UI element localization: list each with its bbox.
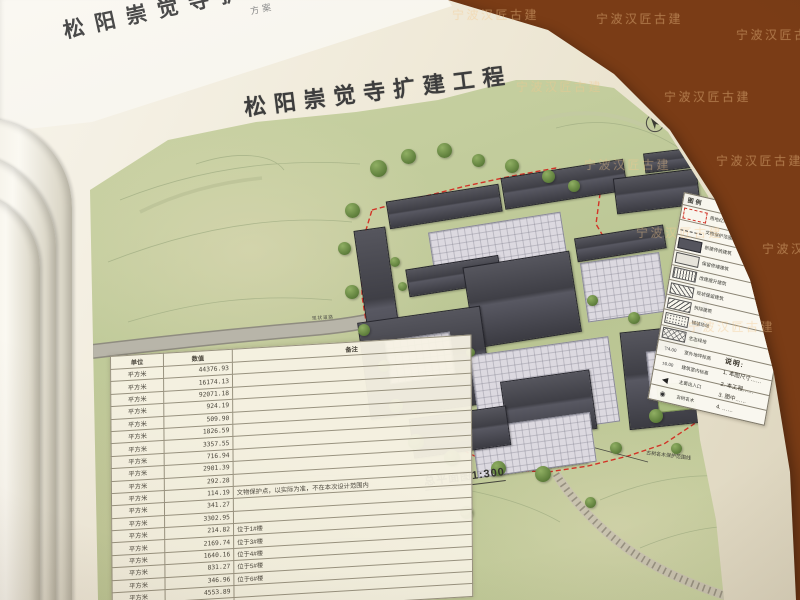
- building-roof: [500, 159, 627, 210]
- tree-icon: [542, 170, 555, 183]
- legend-label: 古树名木: [676, 395, 695, 405]
- tree-icon: [345, 203, 360, 218]
- stone-step-path: [556, 474, 726, 596]
- tree-icon: [568, 180, 580, 192]
- legend-label: 现状保留建筑: [696, 290, 724, 302]
- tree-icon: [338, 242, 351, 255]
- area-statistics-table: 单位 数值 备注 平方米44376.93平方米16174.13平方米92071.…: [110, 335, 473, 600]
- tree-icon: [472, 154, 485, 167]
- tree-icon: [398, 282, 407, 291]
- photo-of-plan-book: 松阳崇觉寺扩建工程 方案: [0, 0, 800, 600]
- tree-icon: [401, 149, 416, 164]
- tree-icon: [649, 409, 663, 423]
- tree-icon: [390, 257, 400, 267]
- tree-icon: [437, 143, 452, 158]
- tree-icon: [345, 285, 359, 299]
- legend-label: 改建提升建筑: [699, 275, 727, 287]
- tree-icon: [610, 442, 622, 454]
- legend-label: 保留修缮建筑: [701, 260, 729, 272]
- legend-label: 主要出入口: [678, 380, 701, 391]
- open-book-page: 松阳崇觉寺扩建工程 方案: [0, 0, 800, 600]
- legend-label: 用地红线: [709, 216, 728, 226]
- elev-marker-icon: ▽4.00: [659, 343, 682, 357]
- previous-page-title: 松阳崇觉寺扩建工程: [60, 0, 348, 45]
- tree-icon: [505, 159, 519, 173]
- legend-label: 拆除建筑: [693, 305, 712, 315]
- tree-icon: [628, 312, 640, 324]
- dash-line-icon: [680, 225, 702, 235]
- tree-icon: [585, 497, 596, 508]
- tree-mark-icon: ◉: [651, 388, 674, 402]
- elev2-marker-icon: ±0.00: [656, 358, 679, 372]
- page-edge-curl: [0, 192, 40, 600]
- legend-label: 室外地坪标高: [684, 350, 712, 362]
- book-shadow-layer: 松阳崇觉寺扩建工程 方案: [0, 0, 800, 600]
- legend-label: 新建传统建筑: [704, 246, 732, 258]
- tree-icon: [535, 466, 551, 482]
- tree-icon: [370, 160, 387, 177]
- legend-label: 文物保护范围线: [705, 230, 737, 243]
- entry-arrow-icon: ◀: [654, 373, 677, 387]
- tree-icon: [358, 324, 370, 336]
- tree-icon: [587, 295, 598, 306]
- legend-label: 生态绿地: [688, 335, 707, 345]
- legend-label: 铺装场地: [691, 320, 710, 330]
- courtyard: [580, 252, 668, 323]
- north-arrow-icon: [644, 112, 666, 134]
- legend-label: 建筑室内标高: [681, 365, 709, 377]
- notes-panel: 说明: 1. 本图尺寸……2. 本工程……3. 图中……4. ……: [715, 356, 800, 436]
- previous-page-corner-text: 方案: [249, 0, 275, 17]
